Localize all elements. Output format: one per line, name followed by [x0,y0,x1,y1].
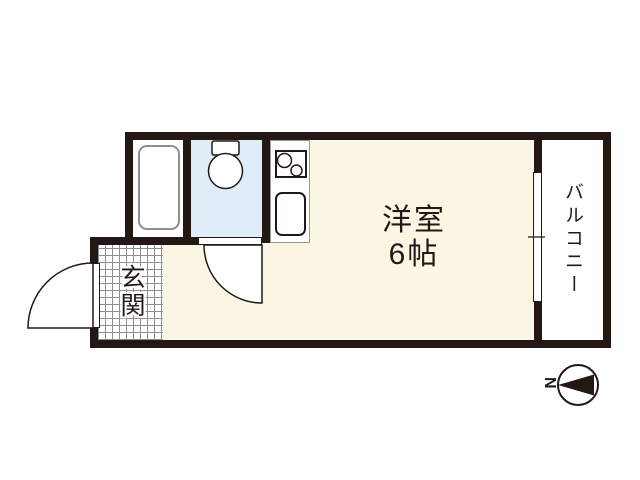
wall-bath-toilet [183,140,191,237]
main-room-name: 洋室 [354,204,474,238]
entry-door-icon [92,263,100,328]
compass-north-arrow-icon [558,375,594,396]
floorplan-canvas: 洋室 6帖 玄関 バルコニー N [0,0,640,480]
compass-circle-icon [558,365,598,405]
main-room-label: 洋室 6帖 [354,204,474,272]
bathtub-icon [138,145,180,230]
wall-bottom [90,340,611,348]
wall-entrance-left-upper [90,237,98,263]
wall-entrance-top [90,237,198,245]
wall-toilet-kitchen [262,140,270,243]
toilet-door-opening [198,237,262,245]
stove-icon [275,150,307,178]
wall-balcony-upper [534,140,542,172]
compass-north-label: N [540,377,558,393]
balcony-window-icon [533,172,542,302]
sink-icon [275,192,306,236]
entrance-label: 玄関 [113,264,149,320]
wall-top [125,132,611,140]
toilet-room-floor [191,140,262,237]
wall-bath-left [125,132,133,245]
wall-entrance-left-lower [90,328,98,348]
wall-balcony-lower [534,302,542,340]
main-room-size: 6帖 [354,238,474,272]
entry-door-swing-icon [28,263,93,328]
balcony-label: バルコニー [559,182,586,297]
wall-right [603,132,611,348]
